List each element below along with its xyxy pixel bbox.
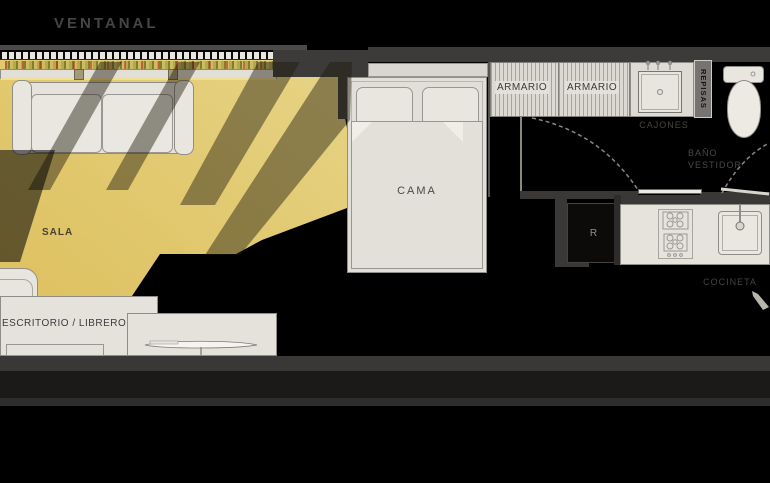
stove-burners-icon <box>663 212 688 256</box>
front-wall <box>0 398 770 406</box>
front-wall <box>0 356 770 371</box>
door-leaf <box>721 189 769 194</box>
kitchen-arrow-icon <box>752 291 769 310</box>
front-wall <box>0 371 770 398</box>
kitchen-faucet-icon <box>736 204 744 230</box>
bed-label: CAMA <box>347 185 487 197</box>
floor-plan: VENTANAL CAMA ARMARIO ARMARIO REPISAS CA… <box>0 0 770 483</box>
blanket-fold <box>352 122 372 142</box>
faucet-icon <box>646 61 671 94</box>
tv-icon <box>145 341 257 356</box>
window-label: VENTANAL <box>54 15 159 32</box>
blanket-fold <box>443 122 463 142</box>
living-room-label: SALA <box>42 227 73 238</box>
door-arc <box>722 143 769 193</box>
door-arc <box>532 118 638 190</box>
toilet-button-icon <box>751 72 755 76</box>
